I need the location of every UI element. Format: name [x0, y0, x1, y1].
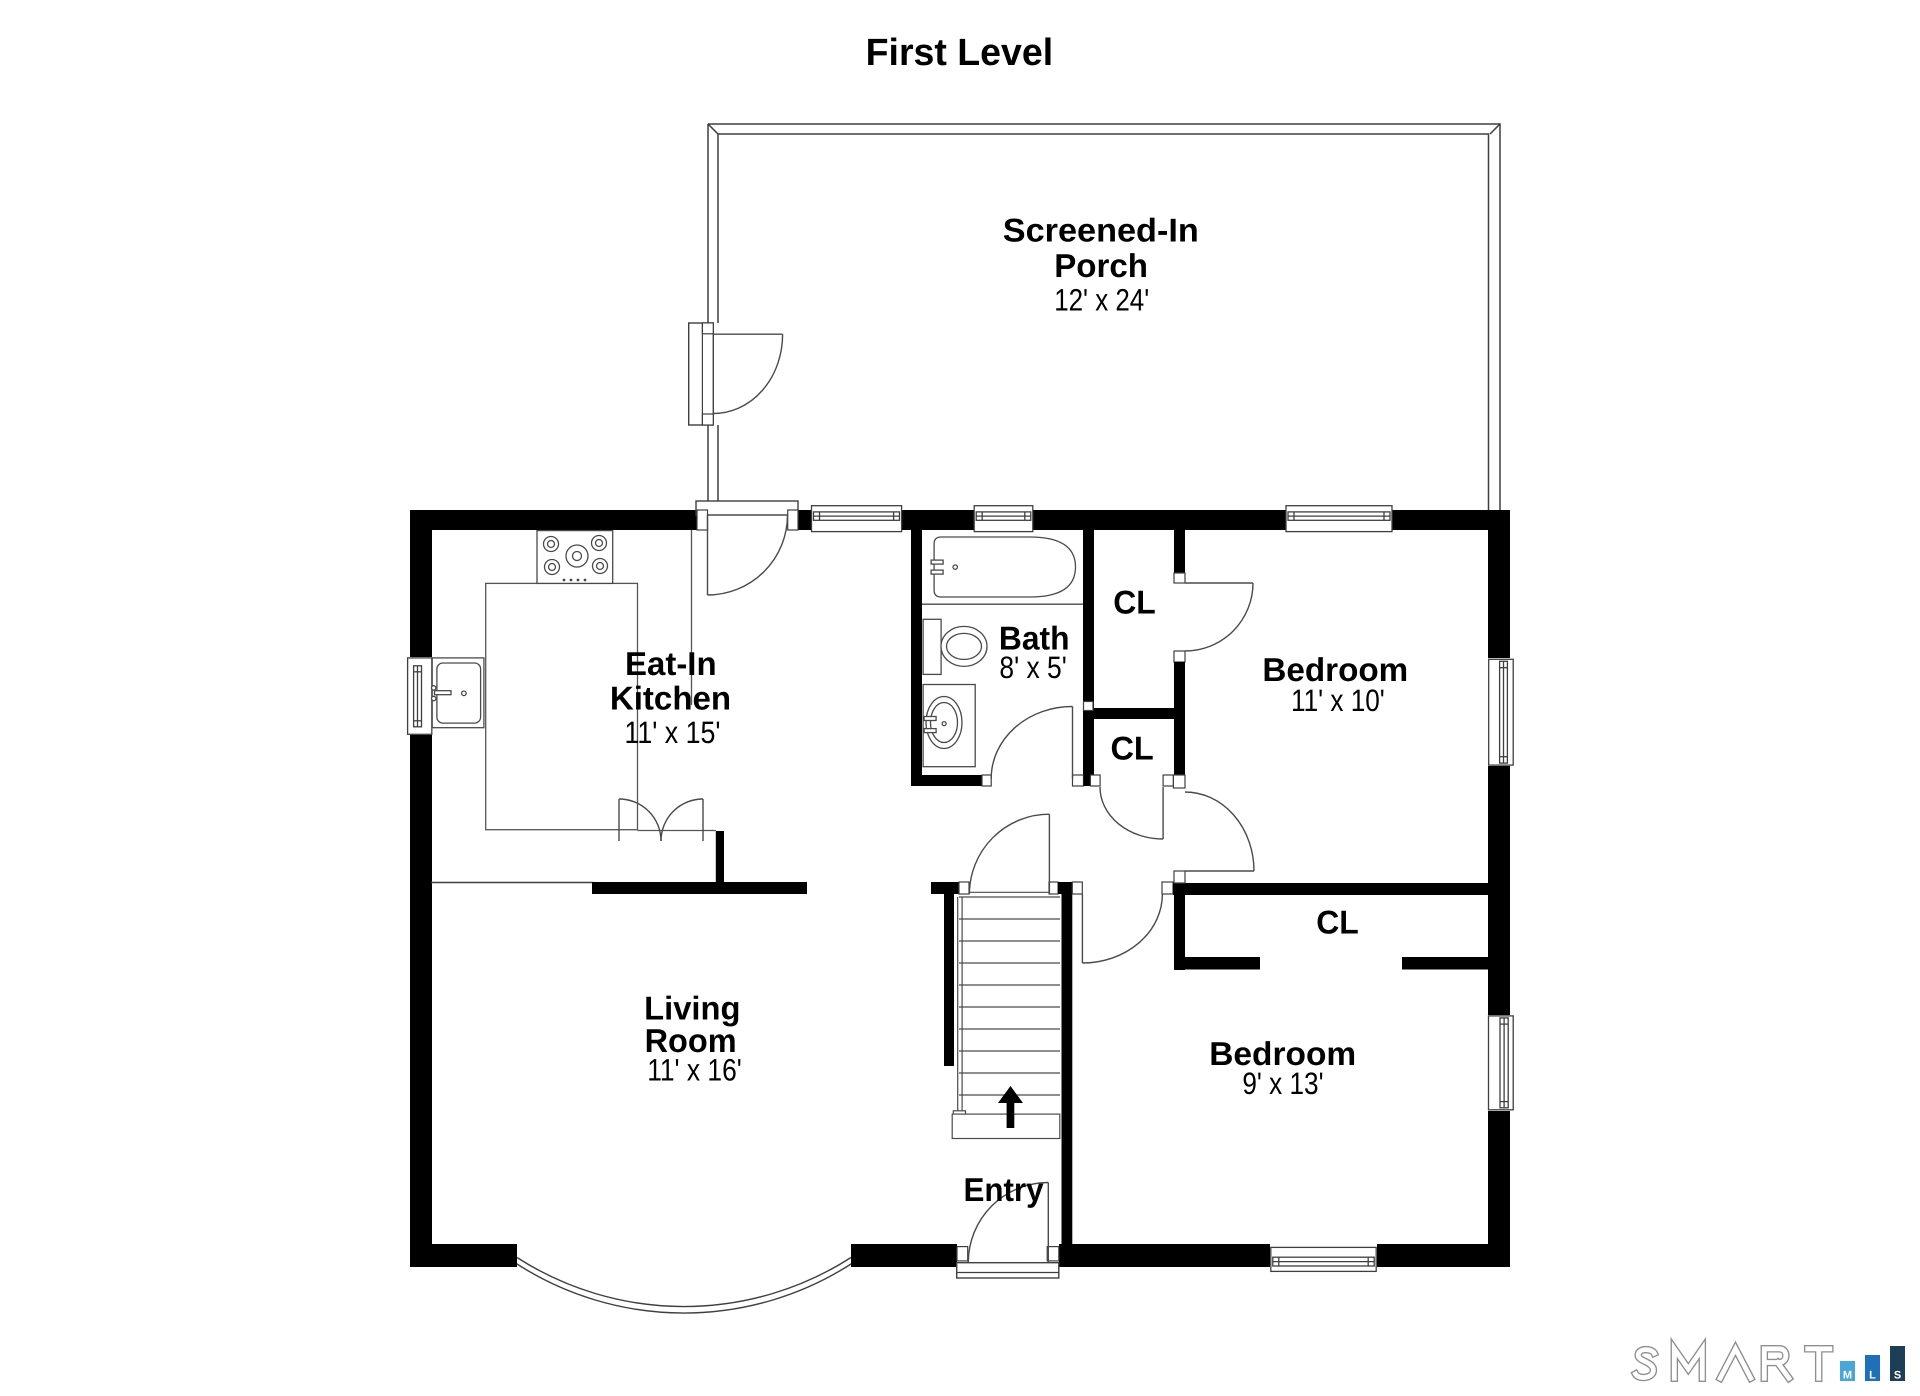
svg-text:12' x 24': 12' x 24'	[1054, 283, 1149, 318]
svg-text:CL: CL	[1316, 904, 1359, 941]
svg-text:Screened-In: Screened-In	[1003, 212, 1199, 249]
svg-text:11' x 15': 11' x 15'	[624, 715, 720, 750]
svg-text:Porch: Porch	[1054, 247, 1148, 284]
svg-text:8' x 5': 8' x 5'	[999, 650, 1066, 685]
svg-text:11' x 16': 11' x 16'	[647, 1052, 742, 1087]
svg-text:CL: CL	[1110, 730, 1153, 767]
svg-text:11' x 10': 11' x 10'	[1291, 683, 1385, 718]
svg-text:CL: CL	[1113, 583, 1156, 620]
svg-text:L: L	[1869, 1370, 1876, 1382]
svg-text:M: M	[1843, 1370, 1852, 1382]
svg-text:Eat-In: Eat-In	[625, 645, 717, 682]
svg-text:S: S	[1894, 1370, 1901, 1382]
svg-text:Entry: Entry	[963, 1171, 1044, 1208]
svg-text:9' x 13': 9' x 13'	[1242, 1066, 1323, 1101]
svg-text:First Level: First Level	[866, 32, 1054, 74]
svg-text:Kitchen: Kitchen	[610, 680, 731, 717]
